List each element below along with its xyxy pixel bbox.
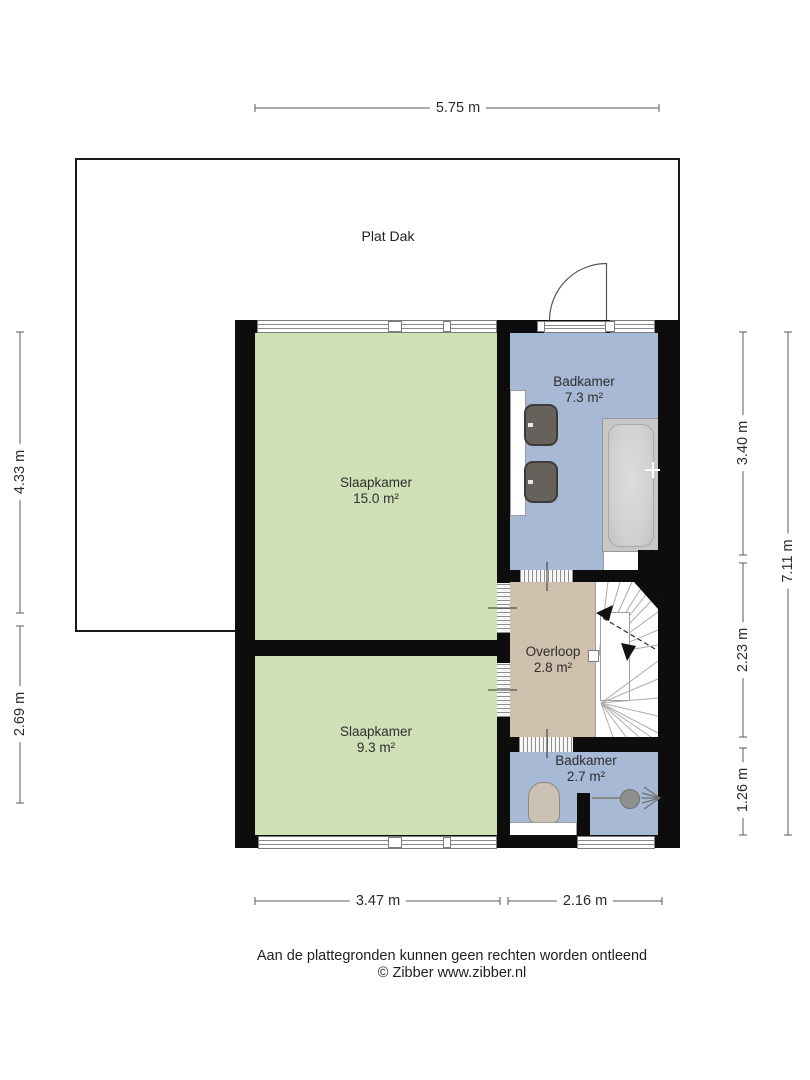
stairwell-area xyxy=(595,582,659,737)
wall-shower-stub xyxy=(577,793,590,835)
door-swing-icon xyxy=(550,263,607,321)
room-area: 15.0 m² xyxy=(353,491,399,506)
dim-top: 5.75 m xyxy=(430,100,486,116)
room-name: Badkamer xyxy=(553,374,615,389)
dim-bottom-left: 3.47 m xyxy=(350,893,406,909)
dim-right-overloop: 2.23 m xyxy=(735,622,751,678)
disclaimer-text: Aan de plattegronden kunnen geen rechten… xyxy=(47,948,810,965)
room-label-badkamer-klein: Badkamer 2.7 m² xyxy=(555,753,617,785)
bathtub-basin xyxy=(608,424,654,547)
door-opening xyxy=(497,583,510,633)
bathtub-ledge xyxy=(603,551,640,572)
window xyxy=(577,836,655,849)
credit-text: © Zibber www.zibber.nl xyxy=(47,965,810,982)
window xyxy=(257,320,497,333)
room-name: Overloop xyxy=(526,644,581,659)
wall-right xyxy=(658,320,680,848)
window-mullion xyxy=(388,837,402,848)
window xyxy=(610,320,655,333)
dim-right-total: 7.11 m xyxy=(780,533,796,588)
dim-left-upper: 4.33 m xyxy=(12,444,28,500)
room-label-slaapkamer-groot: Slaapkamer 15.0 m² xyxy=(340,475,412,507)
footer: Aan de plattegronden kunnen geen rechten… xyxy=(47,948,810,982)
window xyxy=(258,836,497,849)
room-label-slaapkamer-klein: Slaapkamer 9.3 m² xyxy=(340,724,412,756)
flat-roof-edge-top xyxy=(75,158,680,160)
room-name: Slaapkamer xyxy=(340,724,412,739)
shower-icon xyxy=(620,789,640,809)
toilet-icon xyxy=(528,782,560,824)
door-opening xyxy=(520,570,573,582)
door-opening xyxy=(519,737,573,752)
stair-newel xyxy=(588,650,599,662)
door-post xyxy=(605,321,615,332)
room-name: Slaapkamer xyxy=(340,475,412,490)
wall-left xyxy=(235,320,255,848)
window-mullion xyxy=(443,321,451,332)
room-area: 2.8 m² xyxy=(534,660,572,675)
flat-roof-edge-right xyxy=(678,158,680,321)
room-area: 2.7 m² xyxy=(567,769,605,784)
room-area: 9.3 m² xyxy=(357,740,395,755)
window-mullion xyxy=(388,321,402,332)
dim-right-badkamer: 3.40 m xyxy=(735,415,751,471)
floorplan-canvas: Plat Dak Slaapkamer 15.0 m² Slaapkamer 9… xyxy=(0,0,810,1080)
room-label-overloop: Overloop 2.8 m² xyxy=(526,644,581,676)
room-name: Badkamer xyxy=(555,753,617,768)
door-post xyxy=(537,321,545,332)
flat-roof-label: Plat Dak xyxy=(362,228,415,244)
sink-icon xyxy=(524,461,558,503)
dim-left-lower: 2.69 m xyxy=(12,686,28,742)
wall-between-bedrooms xyxy=(235,640,510,656)
dim-right-badkamer-klein: 1.26 m xyxy=(735,762,751,818)
flat-roof-edge-left xyxy=(75,158,77,632)
toilet-base xyxy=(508,822,577,836)
room-label-badkamer-groot: Badkamer 7.3 m² xyxy=(553,374,615,406)
sink-icon xyxy=(524,404,558,446)
door-threshold xyxy=(544,321,606,333)
door-opening xyxy=(497,663,510,717)
room-area: 7.3 m² xyxy=(565,390,603,405)
window-mullion xyxy=(443,837,451,848)
flat-roof-edge-bottom xyxy=(75,630,238,632)
dim-bottom-right: 2.16 m xyxy=(557,893,613,909)
